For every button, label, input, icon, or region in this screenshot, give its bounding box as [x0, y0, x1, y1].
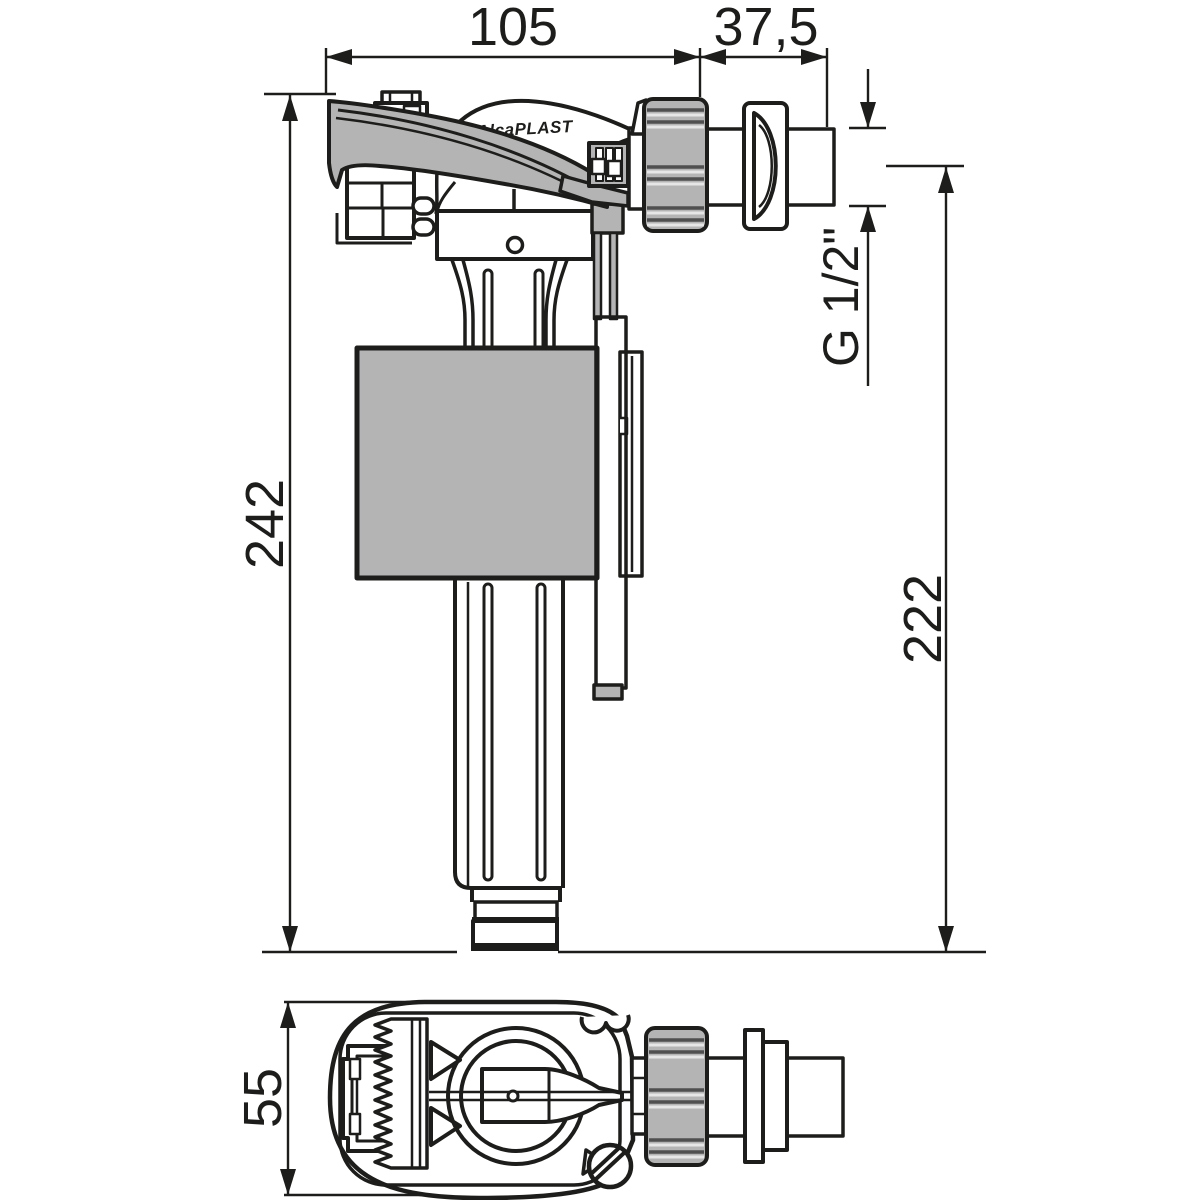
dim-label-37-5: 37,5: [713, 0, 818, 57]
plan-flange-nut: [745, 1030, 787, 1162]
valve-body: [437, 189, 593, 259]
outlet-tube: [455, 578, 563, 947]
flange-nut: [744, 103, 787, 229]
dimension-width-105: 105: [326, 0, 700, 97]
float-guide-bracket: [337, 162, 434, 243]
bottom-plan-view: [330, 1002, 843, 1198]
dim-label-55: 55: [233, 1068, 293, 1128]
technical-drawing-page: AlcaPLAST: [0, 0, 1200, 1200]
dimension-height-242: 242: [235, 94, 336, 952]
dim-label-g12: G 1/2": [813, 227, 869, 367]
float-cup: [357, 348, 597, 578]
main-side-view: AlcaPLAST: [329, 92, 834, 947]
float-rail: [620, 352, 642, 576]
plan-mounting-nut: [646, 1028, 707, 1165]
dim-label-222: 222: [893, 574, 953, 664]
fill-valve-drawing: AlcaPLAST: [0, 0, 1200, 1200]
dim-label-105: 105: [468, 0, 558, 57]
body-legs: [452, 260, 567, 350]
dimension-thread-size-g12: G 1/2": [813, 69, 886, 386]
dim-label-242: 242: [235, 479, 295, 569]
dimension-height-222: 222: [886, 166, 964, 952]
mounting-nut: [644, 99, 707, 231]
